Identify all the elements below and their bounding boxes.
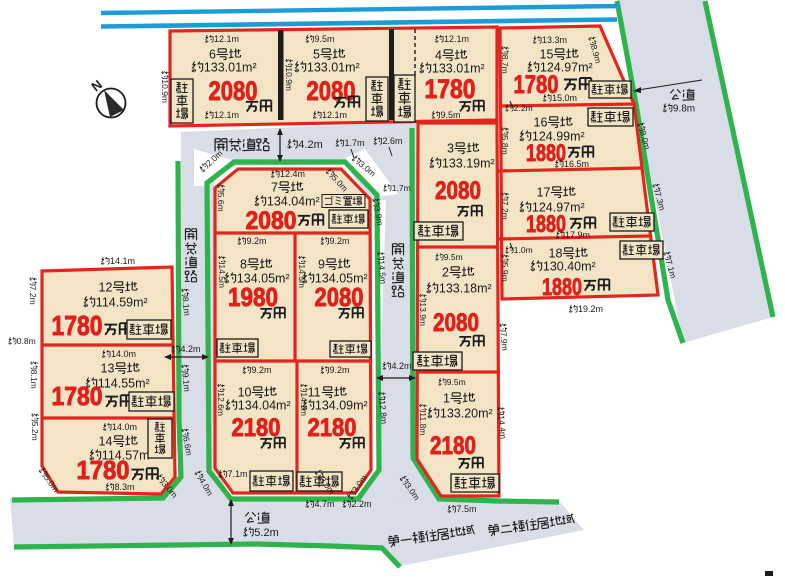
svg-text:7.5m: 7.5m [457,504,477,514]
svg-text:1780: 1780 [52,381,103,411]
svg-text:17: 17 [537,185,551,199]
svg-text:1.7m: 1.7m [392,183,411,193]
svg-text:1780: 1780 [425,74,476,104]
svg-text:15: 15 [540,47,554,61]
svg-text:1: 1 [443,391,450,405]
svg-text:10.9m: 10.9m [284,67,294,91]
svg-text:12: 12 [99,280,113,294]
svg-text:1880: 1880 [526,211,566,238]
svg-text:9.2m: 9.2m [330,365,350,375]
svg-text:15.0m: 15.0m [552,93,577,103]
svg-text:10: 10 [238,385,252,399]
svg-text:134.04m²: 134.04m² [238,398,291,412]
svg-text:8.1m: 8.1m [181,296,193,316]
svg-text:4.2m: 4.2m [181,344,201,354]
svg-text:14.5m: 14.5m [376,260,388,284]
svg-text:14.4m: 14.4m [496,415,508,439]
svg-text:14.0m: 14.0m [112,422,137,432]
svg-text:7.2m: 7.2m [500,201,510,220]
svg-text:7: 7 [271,180,278,194]
svg-text:8.7m: 8.7m [500,55,510,74]
svg-text:9.5m: 9.5m [315,34,335,44]
svg-text:9.5m: 9.5m [441,110,461,120]
svg-text:12.1m: 12.1m [444,34,469,44]
svg-text:4.2m: 4.2m [392,361,412,371]
svg-text:13.9m: 13.9m [418,302,428,326]
svg-text:7.9m: 7.9m [499,331,511,351]
svg-text:9.5m: 9.5m [447,377,466,387]
svg-text:2080: 2080 [435,177,481,205]
svg-text:16: 16 [534,115,548,129]
svg-text:2180: 2180 [430,432,476,460]
svg-text:133.20m²: 133.20m² [440,406,493,420]
svg-text:1880: 1880 [542,274,582,301]
svg-text:9: 9 [318,257,325,271]
svg-text:14.1m: 14.1m [110,256,135,266]
svg-text:1780: 1780 [52,310,103,341]
svg-text:14: 14 [99,434,113,448]
svg-text:17.9m: 17.9m [565,230,590,240]
svg-text:114.59m²: 114.59m² [96,295,148,309]
svg-text:2.2m: 2.2m [352,499,372,509]
svg-text:9.2m: 9.2m [330,236,350,246]
svg-text:5: 5 [313,47,320,61]
svg-text:133.19m²: 133.19m² [442,156,495,170]
svg-text:19.2m: 19.2m [578,304,603,314]
svg-text:7.1m: 7.1m [228,469,248,479]
svg-text:5.6m: 5.6m [216,193,226,212]
svg-text:14.5m: 14.5m [217,264,227,288]
svg-text:1980: 1980 [228,282,278,312]
svg-text:13: 13 [101,361,115,375]
svg-text:133.01m²: 133.01m² [204,60,257,74]
svg-text:8.3m: 8.3m [115,482,135,492]
svg-text:16.5m: 16.5m [564,159,589,169]
svg-text:9.8m: 9.8m [673,104,695,115]
svg-text:1.0m: 1.0m [514,245,533,255]
svg-text:2080: 2080 [433,309,479,337]
svg-text:10.9m: 10.9m [160,79,170,103]
svg-text:133.01m²: 133.01m² [307,60,360,74]
svg-text:7.2m: 7.2m [28,286,38,305]
svg-text:18: 18 [549,246,563,260]
svg-text:8: 8 [240,257,247,271]
svg-text:5.8m: 5.8m [500,136,510,155]
svg-text:2.2m: 2.2m [514,103,533,113]
svg-text:9.1m: 9.1m [181,372,193,392]
svg-text:5.9m: 5.9m [500,263,510,282]
svg-text:9.5m: 9.5m [444,252,463,262]
svg-text:134.09m²: 134.09m² [315,398,368,412]
svg-text:4.2m: 4.2m [298,139,322,151]
svg-text:14.0m: 14.0m [111,349,136,359]
svg-text:12.1m: 12.1m [322,110,347,120]
svg-text:8.1m: 8.1m [29,370,39,389]
svg-text:12.1m: 12.1m [214,34,239,44]
svg-text:14.5m: 14.5m [297,264,307,288]
svg-text:12.4m: 12.4m [280,169,305,179]
svg-text:1780: 1780 [77,455,130,485]
svg-text:2180: 2180 [232,414,281,442]
svg-text:5.2m: 5.2m [254,527,278,539]
svg-text:4.7m: 4.7m [315,499,335,509]
svg-text:0.8m: 0.8m [17,336,36,346]
svg-text:3: 3 [447,141,454,155]
svg-text:2080: 2080 [246,207,297,235]
svg-text:6: 6 [209,47,216,61]
svg-text:114.55m²: 114.55m² [98,376,150,390]
svg-text:130.40m²: 130.40m² [543,259,596,273]
svg-text:9.2m: 9.2m [252,365,272,375]
svg-text:2.6m: 2.6m [383,136,403,146]
svg-text:13.3m: 13.3m [542,35,567,45]
svg-text:4: 4 [435,48,442,62]
svg-text:12.6m: 12.6m [216,392,226,416]
svg-text:1880: 1880 [526,140,566,167]
svg-text:2180: 2180 [308,414,357,442]
svg-text:9.2m: 9.2m [247,236,267,246]
svg-text:12.1m: 12.1m [214,110,239,120]
svg-text:2: 2 [442,265,449,279]
svg-text:5.2m: 5.2m [30,422,40,441]
svg-text:133.18m²: 133.18m² [439,281,492,295]
svg-text:14.1m: 14.1m [299,392,309,416]
svg-text:11.8m: 11.8m [418,412,428,435]
svg-text:12.8m: 12.8m [377,400,389,424]
svg-text:1.7m: 1.7m [345,138,365,148]
